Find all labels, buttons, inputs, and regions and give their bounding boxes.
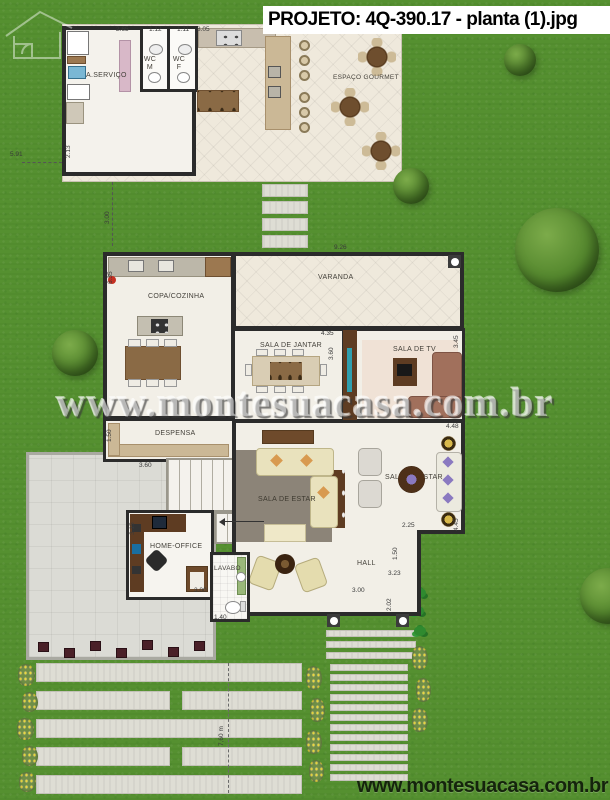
dimension: 2.13	[66, 145, 73, 158]
porch-column	[327, 614, 340, 627]
cabinet	[66, 102, 84, 124]
driveway-slab	[182, 691, 302, 710]
flower-shrub	[416, 678, 431, 702]
sink-icon	[128, 260, 144, 272]
stair-arrowhead	[219, 518, 225, 526]
pantry-counter	[108, 444, 229, 457]
chair	[256, 349, 268, 356]
path-step	[330, 734, 408, 741]
dimension: 3.00	[352, 588, 365, 595]
driveway-slab	[36, 747, 170, 766]
floor-plan-image: A.SERVIÇO WC M WC F ESPAÇO GOURMET VARAN…	[0, 0, 610, 800]
flower-shrub	[19, 772, 36, 792]
entry-step	[326, 630, 416, 637]
driveway-slab	[36, 719, 302, 738]
driveway-slab	[36, 691, 170, 710]
driveway-slab	[36, 663, 302, 682]
bush	[393, 168, 429, 204]
room-label-gourmet: ESPAÇO GOURMET	[333, 74, 399, 81]
dimension: 3.00	[105, 211, 112, 224]
varanda-room	[232, 252, 464, 330]
dimension: 1.11	[177, 27, 189, 34]
pc-icon	[132, 544, 141, 554]
porch-column	[396, 614, 409, 627]
flower-shrub	[306, 666, 322, 690]
stepping-stone	[262, 201, 308, 214]
dimension: 1.50	[393, 547, 400, 560]
chair	[292, 349, 304, 356]
planter-pot	[90, 641, 101, 651]
flower-shrub	[306, 730, 322, 754]
room-label-tv: SALA DE TV	[393, 346, 436, 354]
bar-stool	[299, 40, 310, 51]
room-label-wc-f: WC F	[171, 56, 187, 72]
dimension: 8.05	[197, 27, 210, 34]
dimension: 7,60 m	[219, 726, 226, 746]
chair	[146, 339, 159, 347]
room-label-office: HOME-OFFICE	[150, 543, 202, 551]
path-step	[330, 694, 408, 701]
kitchen-counter	[108, 257, 206, 277]
room-label-varanda: VARANDA	[318, 274, 353, 282]
stepping-stone	[262, 235, 308, 248]
dimension: 3.45	[454, 335, 461, 348]
dimension: 4.35	[321, 331, 334, 338]
dimension: 3.23	[388, 571, 401, 578]
path-step	[330, 664, 408, 671]
grill-icon	[268, 66, 281, 78]
chair	[128, 339, 141, 347]
armchair	[358, 480, 382, 508]
chair	[274, 349, 286, 356]
path-step	[330, 704, 408, 711]
gourmet-table	[362, 132, 400, 170]
ironing-board	[119, 40, 131, 92]
watermark-text: www.montesuacasa.com.br	[0, 382, 610, 423]
path-step	[330, 754, 408, 761]
toilet-icon	[148, 72, 161, 83]
armchair	[358, 448, 382, 476]
toilet-tank	[240, 601, 246, 612]
cooktop-icon	[216, 30, 242, 46]
ottoman	[264, 524, 306, 542]
planter-pot	[64, 648, 75, 658]
dimension: 2.25	[402, 523, 415, 530]
monitor-icon	[152, 516, 167, 529]
flower-shrub	[310, 698, 325, 722]
planter-pot	[116, 648, 127, 658]
laundry-sink	[68, 66, 86, 79]
planter-pot	[142, 640, 153, 650]
stair-direction-arrow	[224, 521, 264, 522]
path-step	[330, 724, 408, 731]
stepping-stone	[262, 184, 308, 197]
dryer-icon	[67, 84, 90, 100]
lavabo-sink	[236, 572, 246, 582]
sofa	[256, 448, 334, 476]
kitchen-island	[197, 90, 239, 112]
copa-table	[125, 346, 181, 380]
room-label-despensa: DESPENSA	[155, 430, 196, 438]
path-step	[330, 744, 408, 751]
flower-shrub	[22, 692, 38, 712]
dimension-line	[22, 162, 62, 163]
bar-counter	[265, 36, 291, 130]
flower-shrub	[17, 718, 34, 740]
dimension: 2.65	[116, 27, 129, 34]
stove-icon	[151, 319, 168, 333]
bar-stool	[299, 55, 310, 66]
round-coffee-table	[398, 466, 425, 493]
image-title-bar: PROJETO: 4Q-390.17 - planta (1).jpg	[263, 6, 610, 34]
tree	[515, 208, 599, 292]
room-label-hall: HALL	[357, 560, 376, 568]
room-label-copa: COPA/COZINHA	[148, 293, 204, 301]
bar-stool	[299, 70, 310, 81]
bar-stool	[299, 122, 310, 133]
dimension: 9.26	[334, 245, 347, 252]
stepping-stone	[262, 218, 308, 231]
dimension: 1.50	[107, 429, 114, 442]
driveway-slab	[36, 775, 302, 794]
desk-item	[132, 566, 141, 574]
planter-pot	[38, 642, 49, 652]
flower-shrub	[412, 708, 428, 732]
driveway-slab	[182, 747, 302, 766]
room-label-servico: A.SERVIÇO	[86, 72, 127, 80]
sideboard	[262, 430, 314, 444]
path-step	[330, 674, 408, 681]
dimension: 1.40	[214, 615, 227, 622]
toilet-icon	[177, 72, 190, 83]
flower-shrub	[18, 664, 35, 686]
chair	[320, 364, 327, 376]
dimension: 3.00	[194, 588, 207, 595]
gourmet-table	[358, 38, 396, 76]
entry-step	[326, 641, 416, 648]
clover-plant	[414, 626, 426, 636]
wc-divider-wall	[167, 26, 170, 92]
wall	[417, 530, 421, 616]
dimension-line	[228, 663, 229, 793]
entry-round-table	[275, 554, 295, 574]
dimension: 3.60	[139, 463, 152, 470]
planter-pot	[168, 647, 179, 657]
room-label-estar1: SALA DE ESTAR	[258, 496, 316, 504]
bar-stool	[299, 107, 310, 118]
room-label-lavabo: LAVABO	[214, 565, 241, 572]
grill-icon	[268, 86, 281, 98]
dimension-line	[112, 182, 113, 246]
tree	[52, 330, 98, 376]
path-step	[330, 684, 408, 691]
dimension: 2.02	[387, 598, 394, 611]
dimension: 5.91	[10, 152, 23, 159]
gourmet-table	[331, 88, 369, 126]
path-step	[330, 764, 408, 771]
dimension: 6.35	[108, 271, 115, 284]
dimension: 1.12	[149, 27, 162, 34]
flower-shrub	[412, 646, 428, 670]
chair	[245, 364, 252, 376]
dimension: 3.15	[130, 522, 137, 535]
wc-sink	[178, 44, 192, 55]
bar-stool	[299, 92, 310, 103]
flower-shrub	[22, 746, 38, 766]
entry-step	[326, 652, 416, 659]
builder-logo-icon	[2, 6, 76, 62]
website-footer-text: www.montesuacasa.com.br	[357, 776, 608, 796]
tree	[580, 568, 610, 624]
table-runner	[270, 362, 302, 380]
path-step	[330, 714, 408, 721]
room-label-jantar: SALA DE JANTAR	[260, 342, 322, 350]
flower-shrub	[309, 760, 324, 782]
planter-pot	[194, 641, 205, 651]
room-label-wc-m: WC M	[142, 56, 158, 72]
sink-icon	[158, 260, 174, 272]
tv-icon	[397, 364, 412, 376]
image-title: PROJETO: 4Q-390.17 - planta (1).jpg	[263, 6, 610, 34]
porch-column	[448, 255, 461, 268]
side-table	[441, 436, 456, 451]
counter-wood	[205, 257, 231, 277]
toilet-icon	[225, 601, 241, 614]
dimension: 4.45	[454, 518, 461, 531]
bush	[504, 44, 536, 76]
chair	[164, 339, 177, 347]
dimension: 3.60	[329, 347, 336, 360]
wc-sink	[149, 44, 163, 55]
